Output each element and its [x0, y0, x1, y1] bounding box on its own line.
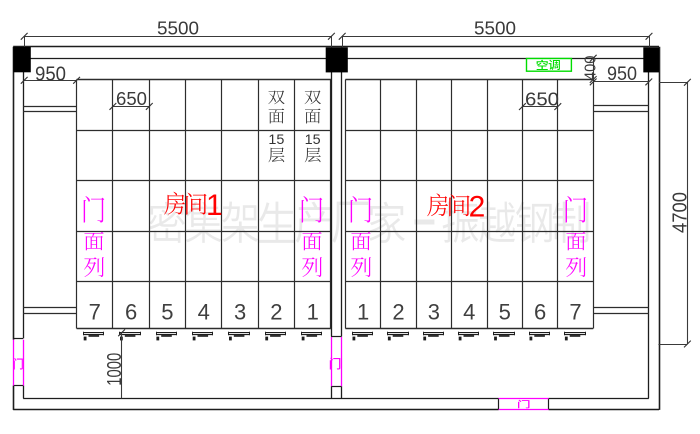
svg-text:1000: 1000	[104, 353, 126, 386]
svg-text:7: 7	[569, 299, 581, 324]
svg-text:650: 650	[116, 89, 147, 109]
svg-text:3: 3	[428, 299, 440, 324]
svg-text:6: 6	[534, 299, 546, 324]
svg-text:950: 950	[35, 64, 66, 86]
svg-text:5: 5	[499, 299, 511, 324]
svg-text:7: 7	[89, 299, 101, 324]
svg-text:4700: 4700	[670, 192, 692, 233]
svg-text:15: 15	[305, 131, 321, 147]
svg-text:15: 15	[268, 131, 284, 147]
svg-text:5500: 5500	[157, 19, 199, 39]
svg-text:2: 2	[392, 299, 404, 324]
svg-text:650: 650	[525, 89, 559, 109]
svg-text:1: 1	[307, 299, 319, 324]
svg-text:1: 1	[206, 189, 223, 222]
svg-text:4: 4	[463, 299, 475, 324]
svg-text:950: 950	[607, 64, 637, 85]
svg-text:2: 2	[469, 190, 486, 223]
svg-text:1: 1	[357, 299, 369, 324]
svg-text:4: 4	[198, 299, 210, 324]
svg-text:2: 2	[270, 299, 282, 324]
svg-text:400: 400	[582, 56, 599, 81]
svg-text:3: 3	[234, 299, 246, 324]
svg-text:5: 5	[161, 299, 173, 324]
svg-text:6: 6	[125, 299, 137, 324]
svg-text:5500: 5500	[474, 19, 516, 39]
